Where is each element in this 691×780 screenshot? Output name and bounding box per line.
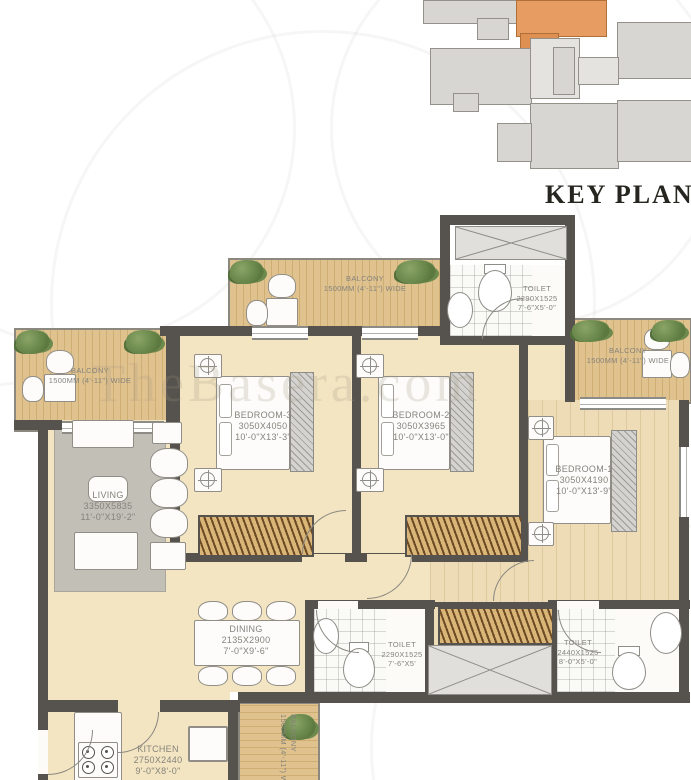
key-plan-block	[453, 93, 479, 112]
sofa	[74, 532, 138, 570]
balcony-bottom-label: BALCONY1500MM (4'-11") WIDE	[279, 714, 298, 780]
wall	[440, 215, 450, 345]
key-plan-block	[497, 123, 532, 162]
sink	[447, 292, 473, 328]
key-plan-block	[477, 18, 509, 40]
sliding-door	[362, 326, 418, 340]
bedside-table	[194, 354, 222, 378]
balcony-top-label: BALCONY1500MM (4'-11") WIDE	[300, 274, 430, 293]
balcony-chair	[246, 300, 268, 326]
wall	[14, 420, 62, 430]
bedside-table	[194, 468, 222, 492]
key-plan-block	[617, 22, 691, 79]
sink	[650, 612, 682, 654]
bedroom1-label: BEDROOM-13050X419010'-0"X13'-9"	[522, 464, 646, 497]
bedroom2-label: BEDROOM-23050X396510'-0"X13'-0"	[362, 410, 480, 443]
dining-label: DINING2135X29007'-0"X9'-6"	[196, 624, 296, 657]
dining-chair	[232, 601, 262, 621]
key-plan-block	[430, 48, 532, 105]
shaft	[455, 226, 567, 260]
kitchen-label: KITCHEN2750X24409'-0"X8'-0"	[112, 744, 204, 777]
floor-plan: KEY PLAN	[0, 0, 691, 780]
key-plan-block	[617, 100, 691, 162]
wc	[612, 652, 646, 690]
wardrobe-bedroom2	[405, 515, 523, 557]
dining-chair	[266, 601, 296, 621]
wall	[228, 700, 238, 780]
lamp-icon	[200, 358, 215, 373]
bedside-table	[356, 354, 384, 378]
balcony-right-label: BALCONY1500MM (4'-11") WIDE	[566, 346, 690, 365]
side-table	[150, 542, 186, 570]
wall	[305, 600, 314, 700]
window	[679, 447, 691, 517]
wardrobe-bedroom3	[198, 515, 314, 557]
dining-chair	[232, 666, 262, 686]
wall	[440, 215, 575, 225]
sliding-door	[252, 326, 308, 340]
lamp-icon	[362, 472, 377, 487]
lamp-icon	[200, 472, 215, 487]
bedside-table	[528, 416, 554, 440]
wc	[343, 648, 375, 688]
key-plan-block	[578, 57, 619, 85]
wall	[48, 700, 118, 712]
bedside-table	[356, 468, 384, 492]
balcony-left-label: BALCONY1500MM (4'-11") WIDE	[24, 366, 156, 385]
wall	[679, 400, 689, 702]
dining-chair	[198, 601, 228, 621]
balcony-chair	[268, 274, 296, 298]
entrance-opening	[38, 730, 48, 774]
wall	[38, 420, 48, 780]
bedroom3-label: BEDROOM-33050X405010'-0"X13'-3"	[203, 410, 323, 443]
dining-chair	[198, 666, 228, 686]
side-table	[152, 422, 182, 444]
toilet-right-label: TOILET2440X15258'-0"X5'-0"	[540, 638, 616, 667]
armchair	[150, 448, 188, 478]
key-plan-highlighted-unit	[516, 0, 607, 37]
toilet-top-label: TOILET2290X15257'-6"X5'-0"	[504, 284, 570, 313]
wardrobe-bedroom1	[438, 607, 554, 645]
key-plan-block	[553, 47, 575, 95]
passage-floor	[528, 345, 568, 405]
key-plan-map	[420, 0, 691, 172]
sofa	[72, 420, 134, 448]
lamp-icon	[534, 526, 549, 541]
burner-icon	[82, 761, 95, 774]
dining-chair	[266, 666, 296, 686]
dresser-unit	[428, 645, 552, 695]
bedside-table	[528, 522, 554, 546]
lamp-icon	[362, 358, 377, 373]
balcony-table	[266, 298, 298, 326]
toilet-mid-label: TOILET2290X15257'-6"X5'	[372, 640, 432, 669]
key-plan-block	[530, 103, 619, 169]
living-label: LIVING3350X583511'-0"X19'-2"	[58, 490, 158, 523]
door-opening	[318, 601, 358, 609]
door-opening	[557, 601, 599, 609]
key-plan-title: KEY PLAN	[545, 180, 691, 210]
lamp-icon	[534, 420, 549, 435]
sliding-door	[580, 397, 666, 410]
